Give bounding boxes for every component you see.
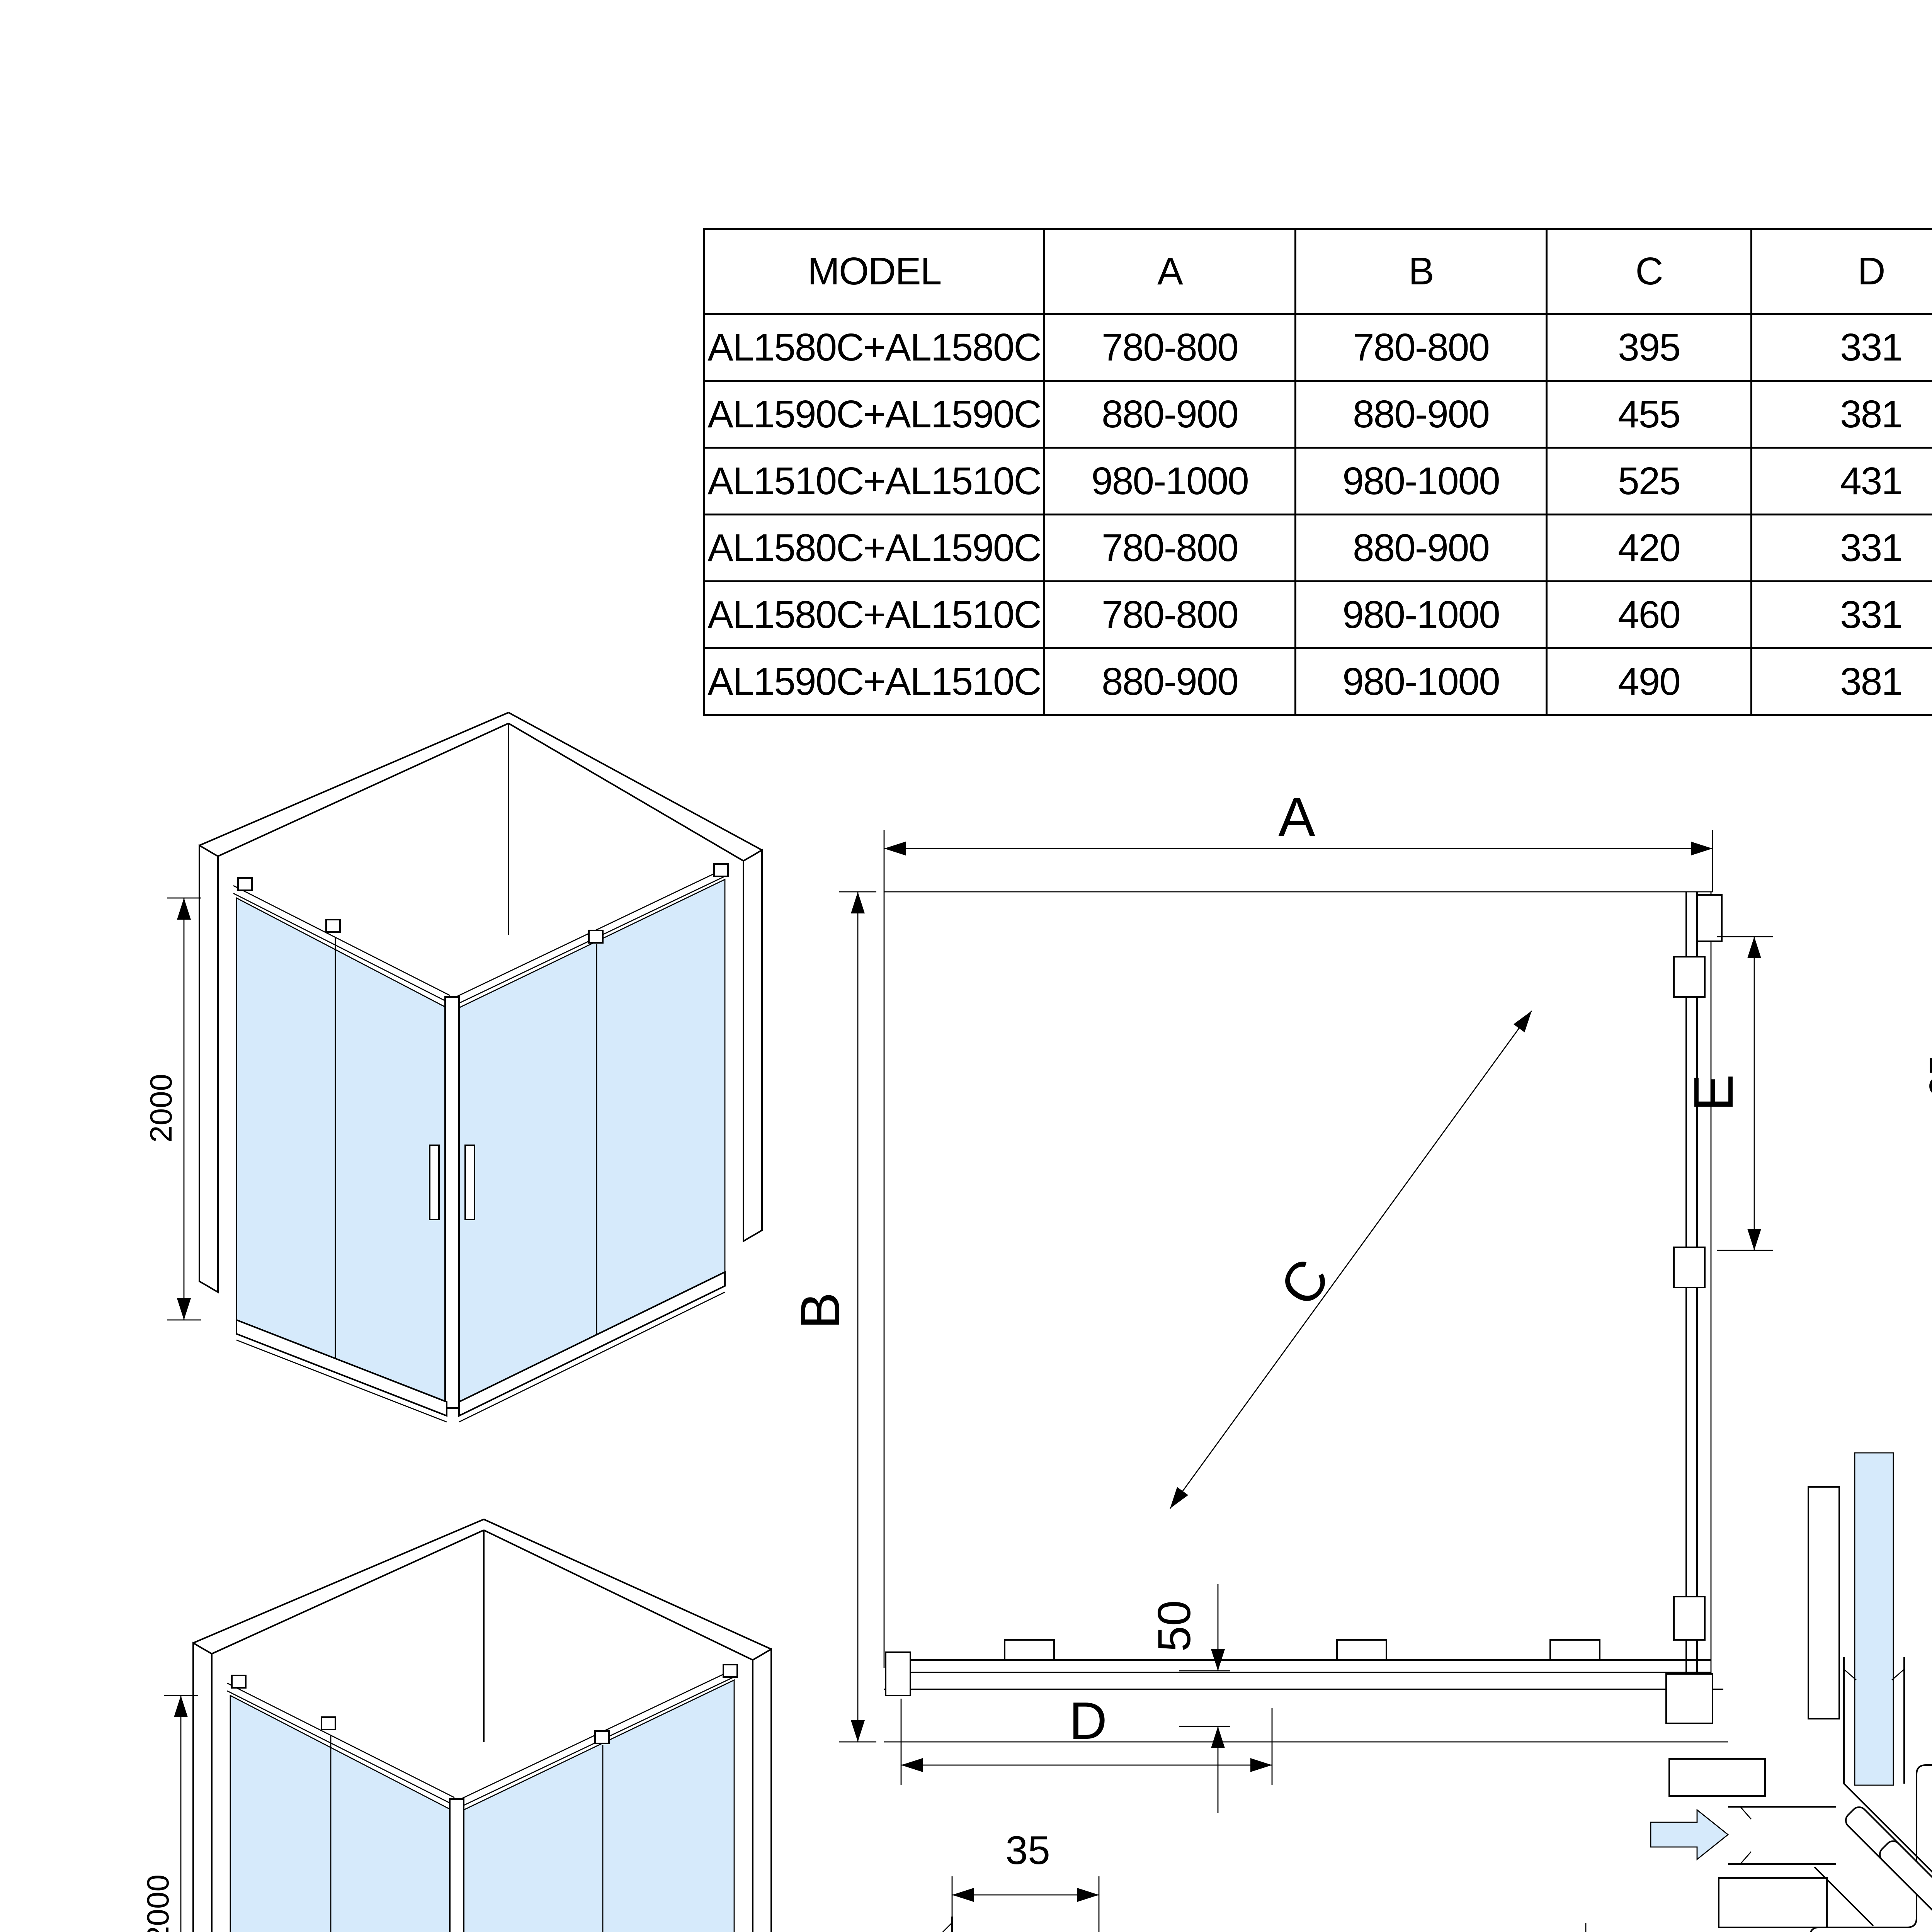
corner-post [445,997,459,1408]
dimension-cell: 490 [1547,648,1752,715]
model-cell: AL1510C+AL1510C [704,448,1044,515]
table-row: AL1590C+AL1590C880-900880-900455381381 [704,381,1932,448]
door-handle [465,1145,474,1219]
left-upper-bar [1669,1759,1765,1796]
plan-dim-depth: 35 [952,1828,1099,1932]
iso1-dimension: 2000 [144,898,201,1320]
plan-dim-glass: 8 [1516,1923,1623,1932]
table-row: AL1590C+AL1510C880-900980-1000490381431 [704,648,1932,715]
dimension-cell: 980-1000 [1296,448,1547,515]
wall-profile-plan-detail: 35 [773,1824,1654,1932]
dimension-cell: 780-800 [1044,314,1296,381]
dimension-cell: 381 [1752,648,1932,715]
dim-e-label: E [1682,1074,1745,1111]
dim-offset-label: 50 [1148,1600,1200,1651]
header-c: C [1547,229,1752,314]
dimension-cell: 880-900 [1044,648,1296,715]
glass-pane-vertical [1855,1453,1893,1785]
dimension-cell: 780-800 [1296,314,1547,381]
model-cell: AL1580C+AL1590C [704,515,1044,582]
plan-view: A B E C [796,750,1777,1832]
wall-hatching [927,1917,952,1932]
dimension-cell: 880-900 [1296,381,1547,448]
dim-d-label: D [1069,1691,1107,1750]
dim-b-label: B [789,1292,851,1329]
iso-view-front: 2000 [147,703,827,1484]
model-cell: AL1580C+AL1580C [704,314,1044,381]
table-row: AL1580C+AL1580C780-800780-800395331331 [704,314,1932,381]
height-dim-label: 2000 [144,1074,178,1143]
dimension-cell: 780-800 [1044,582,1296,648]
iso2-dimension: 2000 [141,1696,198,1932]
header-d: D [1752,229,1932,314]
dimension-cell: 880-900 [1296,515,1547,582]
dimension-cell: 460 [1547,582,1752,648]
dimension-cell: 395 [1547,314,1752,381]
section-dim-depth: 35 [1922,1002,1932,1147]
dim-depth-label: 35 [1005,1828,1050,1873]
drawing-sheet: MODEL A B C D E AL1580C+AL1580C780-80078… [0,0,1932,1932]
dim-c-label: C [1267,1248,1341,1317]
door-handle [430,1145,439,1219]
glass-direction-arrow [1651,1810,1728,1859]
table-row: AL1580C+AL1510C780-800980-1000460331431 [704,582,1932,648]
dimension-cell: 331 [1752,515,1932,582]
iso2-glass [227,1665,737,1932]
dim-depth-label: 35 [1922,1055,1932,1097]
plan-outline [884,892,1728,1742]
height-dim-label: 2000 [141,1874,175,1932]
dimension-cell: 980-1000 [1296,582,1547,648]
model-cell: AL1580C+AL1510C [704,582,1044,648]
header-a: A [1044,229,1296,314]
dimension-cell: 455 [1547,381,1752,448]
iso-view-back: 2000 [147,1507,827,1932]
dimension-cell: 525 [1547,448,1752,515]
dimension-cell: 381 [1752,381,1932,448]
table-row: AL1580C+AL1590C780-800880-900420331381 [704,515,1932,582]
corner-post [450,1799,464,1932]
dimension-cell: 420 [1547,515,1752,582]
spec-table: MODEL A B C D E AL1580C+AL1580C780-80078… [703,228,1932,716]
header-model: MODEL [704,229,1044,314]
spec-table-header: MODEL A B C D E [704,229,1932,314]
wall-profile-section-detail: 18,2 [1927,773,1932,1515]
iso1-glass [233,864,728,1422]
model-cell: AL1590C+AL1590C [704,381,1044,448]
spec-table-region: MODEL A B C D E AL1580C+AL1580C780-80078… [703,228,1932,716]
table-row: AL1510C+AL1510C980-1000980-1000525431431 [704,448,1932,515]
dimension-cell: 331 [1752,582,1932,648]
corner-joint-detail [1638,1453,1932,1932]
header-b: B [1296,229,1547,314]
top-left-panel [1808,1487,1839,1719]
table-body: AL1580C+AL1580C780-800780-800395331331AL… [704,314,1932,715]
dimension-cell: 780-800 [1044,515,1296,582]
dimension-cell: 980-1000 [1044,448,1296,515]
dim-a-label: A [1278,786,1315,848]
plan-dimensions: A B E C [789,786,1773,1813]
dimension-cell: 331 [1752,314,1932,381]
dimension-cell: 431 [1752,448,1932,515]
dimension-cell: 880-900 [1044,381,1296,448]
dimension-cell: 980-1000 [1296,648,1547,715]
left-lower-bar [1719,1878,1827,1927]
